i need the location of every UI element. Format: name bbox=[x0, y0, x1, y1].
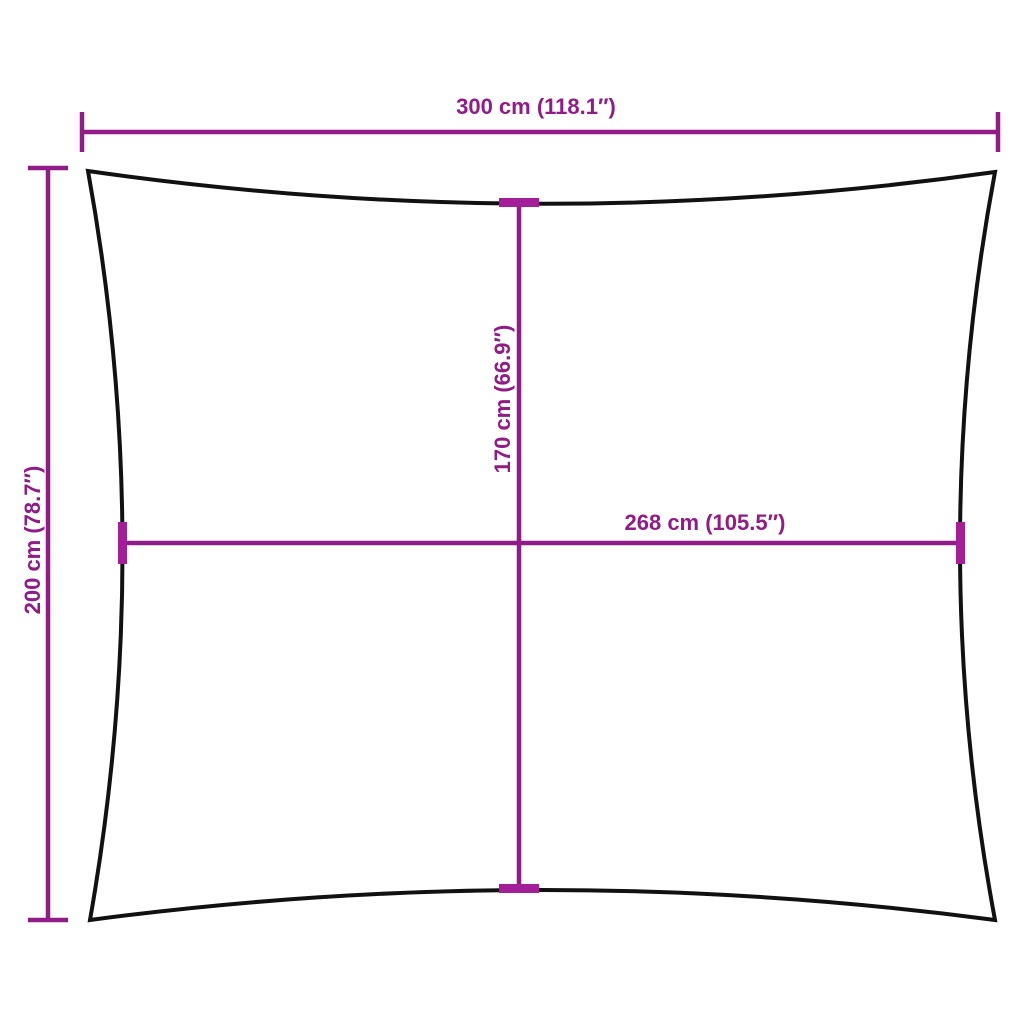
inner-width-thick-tick-left bbox=[118, 522, 127, 564]
inner-height-thick-tick-top bbox=[499, 198, 539, 207]
inner-width-thick-tick-right bbox=[956, 522, 965, 564]
inner-height-dimension-label: 170 cm (66.9″) bbox=[490, 325, 515, 474]
overall-width-dimension: 300 cm (118.1″) bbox=[82, 94, 998, 152]
overall-width-dimension-label: 300 cm (118.1″) bbox=[456, 94, 616, 119]
inner-width-dimension-label: 268 cm (105.5″) bbox=[625, 510, 786, 535]
dimension-diagram: 300 cm (118.1″) 200 cm (78.7″) 170 cm (6… bbox=[0, 0, 1024, 1024]
overall-height-dimension: 200 cm (78.7″) bbox=[20, 168, 68, 920]
inner-height-thick-tick-bottom bbox=[499, 884, 539, 893]
overall-height-dimension-label: 200 cm (78.7″) bbox=[20, 466, 45, 615]
sail-outline bbox=[88, 171, 995, 920]
dimension-diagram-stage: 300 cm (118.1″) 200 cm (78.7″) 170 cm (6… bbox=[0, 0, 1024, 1024]
